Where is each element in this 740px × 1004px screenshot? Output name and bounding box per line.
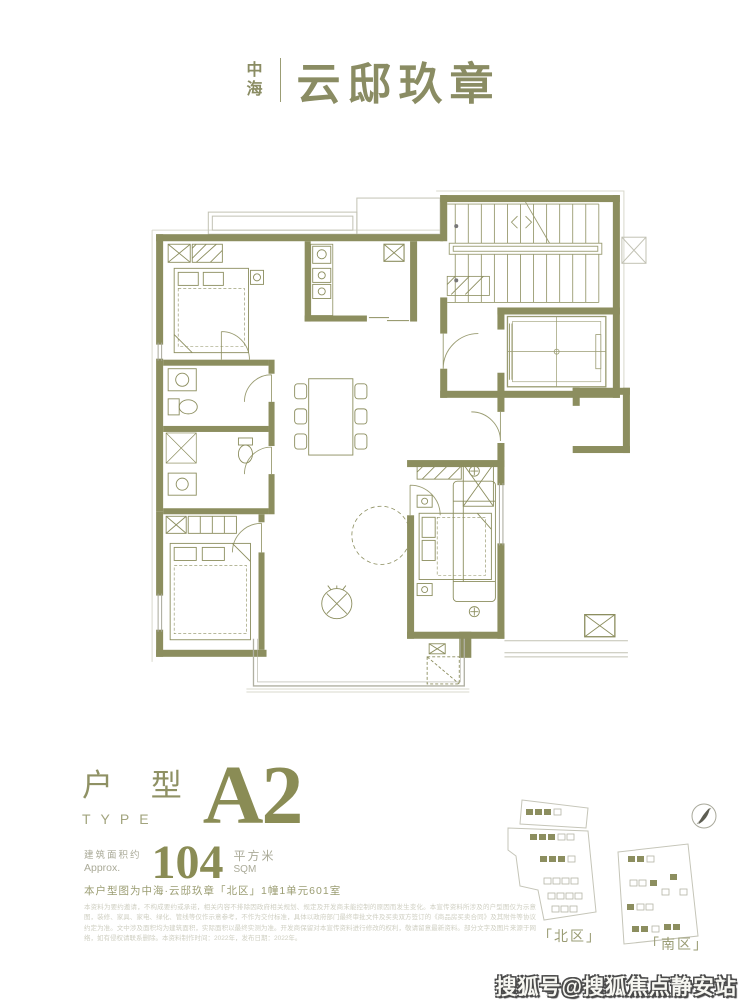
floorplan-poster: 中海 云邸玖章 — [0, 0, 740, 1004]
area-prefix-en: Approx. — [84, 862, 142, 875]
area-unit-en: SQM — [234, 864, 276, 877]
watermark-text: 搜狐号@搜狐焦点静安站 — [496, 971, 737, 1001]
area-prefix-cn: 建筑面积约 — [84, 850, 142, 862]
exterior-offset-lines — [152, 191, 624, 692]
siteplan-north-label: 「北区」 — [538, 926, 602, 946]
logo-divider — [280, 58, 281, 102]
brand-logo: 中海 云邸玖章 — [0, 48, 740, 112]
unit-area-row: 建筑面积约 Approx. 104 平方米 SQM — [84, 841, 276, 884]
unit-location-note: 本户型图为中海·云邸玖章「北区」1幢1单元601室 — [84, 883, 341, 898]
disclaimer-text: 本资料为要约邀请，不构成要约或承诺，相关内容不排除因政府相关规划、规定及开发商未… — [84, 903, 536, 945]
balcony — [253, 639, 464, 686]
elevator — [507, 317, 605, 387]
window-lines — [158, 343, 503, 632]
brand-logo-main-text: 云邸玖章 — [297, 48, 501, 112]
brand-logo-vertical-text: 中海 — [240, 61, 264, 99]
compass-icon — [692, 804, 716, 828]
unit-type-label-cn: 户 型 — [82, 760, 197, 805]
unit-floorplan-drawing — [128, 182, 650, 704]
furniture — [166, 244, 615, 640]
area-unit-cn: 平方米 — [234, 849, 276, 864]
area-value: 104 — [152, 841, 224, 884]
unit-type-label-en: TYPE — [82, 811, 197, 827]
siteplan-south-label: 「南区」 — [645, 934, 709, 954]
walls — [156, 195, 630, 658]
stairwell — [447, 202, 602, 302]
unit-type-block: 户 型 TYPE A2 — [82, 760, 301, 831]
unit-type-code: A2 — [203, 760, 302, 831]
